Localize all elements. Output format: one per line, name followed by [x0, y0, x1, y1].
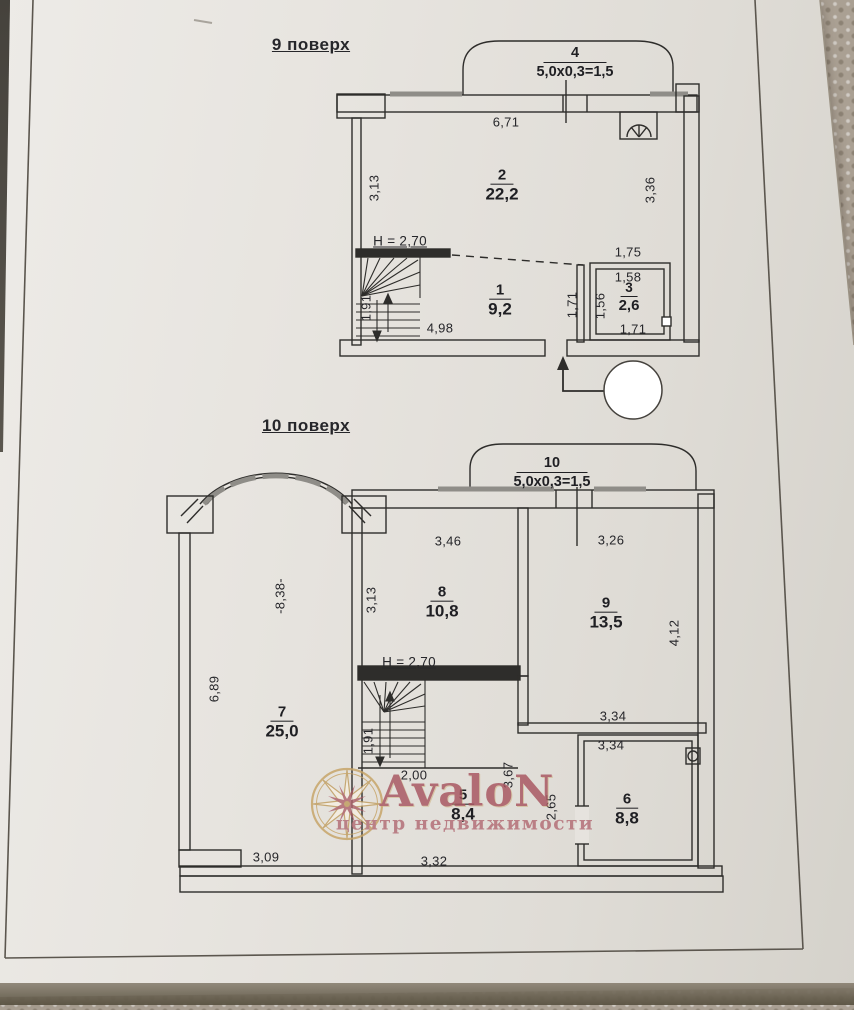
- room7-label: 7 25,0: [265, 704, 298, 743]
- balcony4-number: 4: [544, 46, 606, 63]
- balcony4-size: 5,0x0,3=1,5: [536, 63, 613, 81]
- room5-area: 8,4: [451, 805, 475, 825]
- room2-number: 2: [491, 167, 513, 185]
- dim-floor9-top: 6,71: [493, 115, 520, 130]
- floor10-plan: [167, 444, 723, 892]
- dim-corridor: 1,71: [565, 292, 580, 319]
- room8-number: 8: [431, 584, 453, 602]
- room9-number: 9: [595, 595, 617, 613]
- dim-room8-left: 3,13: [364, 587, 379, 614]
- tablecloth-bottom-edge: [0, 983, 854, 1005]
- floor10-title: 10 поверх: [262, 416, 350, 436]
- dim-floor10-stairs: 1,91: [361, 728, 376, 755]
- room9-label: 9 13,5: [589, 595, 622, 634]
- room8-label: 8 10,8: [425, 584, 458, 623]
- dim-hall-width10: 3,34: [600, 709, 627, 724]
- dim-room9-top: 3,26: [598, 533, 625, 548]
- scanned-floorplan-photo: 9 поверх 4 5,0x0,3=1,5 6,71 3,13 3,36 2 …: [0, 0, 854, 1005]
- floor10-ceiling-height: H = 2,70: [382, 655, 436, 670]
- room7-number: 7: [271, 704, 293, 722]
- smudge-mark: [194, 20, 212, 23]
- dim-room9-right: 4,12: [667, 620, 682, 647]
- room1-area: 9,2: [488, 300, 512, 320]
- floor9-title: 9 поверх: [272, 35, 350, 55]
- paper-edge-line: [820, 0, 854, 345]
- dim-room8-top: 3,46: [435, 534, 462, 549]
- room1-number: 1: [489, 282, 511, 300]
- erased-stamp-circle: [604, 361, 662, 419]
- dim-wc-bottom: 1,71: [620, 322, 647, 337]
- dim-room6-left: 2,65: [544, 794, 559, 821]
- room2-label: 2 22,2: [485, 167, 518, 206]
- room3-label: 3 2,6: [619, 279, 640, 315]
- floor9-ceiling-height: H = 2,70: [373, 234, 427, 249]
- room7-area: 25,0: [265, 722, 298, 742]
- dim-stairs-bottom: 2,00: [401, 768, 428, 783]
- room6-label: 6 8,8: [615, 791, 639, 830]
- room6-number: 6: [616, 791, 638, 809]
- dim-corridor-height: 3,67: [501, 762, 516, 789]
- dim-bay: -8,38-: [273, 578, 288, 614]
- entrance-arrow: [557, 356, 604, 391]
- room3-number: 3: [620, 280, 638, 297]
- room6-area: 8,8: [615, 809, 639, 829]
- room9-area: 13,5: [589, 613, 622, 633]
- dim-room7-left: 6,89: [207, 676, 222, 703]
- dim-floor9-left: 3,13: [367, 175, 382, 202]
- vent-shaft-icon: [620, 112, 657, 139]
- dim-room1-width: 4,98: [427, 321, 454, 336]
- document-frame: [5, 0, 803, 958]
- balcony10-number: 10: [517, 456, 587, 473]
- balcony10-size: 5,0x0,3=1,5: [513, 473, 590, 491]
- room8-area: 10,8: [425, 602, 458, 622]
- dim-floor9-right: 3,36: [643, 177, 658, 204]
- dim-room6-top: 3,34: [598, 738, 625, 753]
- dim-floor9-stairs: 1,91: [359, 295, 374, 322]
- room1-label: 1 9,2: [488, 282, 512, 321]
- dim-wc-left: 1,56: [593, 293, 608, 320]
- balcony10-label: 10 5,0x0,3=1,5: [513, 454, 590, 491]
- dim-room7-bottom: 3,09: [253, 850, 280, 865]
- room3-area: 2,6: [619, 297, 640, 315]
- bay-window-icon: [167, 473, 386, 533]
- room2-area: 22,2: [485, 185, 518, 205]
- balcony4-label: 4 5,0x0,3=1,5: [536, 44, 613, 81]
- room5-number: 5: [452, 787, 474, 805]
- dim-hall-width: 1,75: [615, 245, 642, 260]
- dim-room5-bottom: 3,32: [421, 854, 448, 869]
- floor9-plan: [337, 41, 699, 419]
- stairs-floor10-icon: [358, 680, 518, 768]
- room5-label: 5 8,4: [451, 787, 475, 826]
